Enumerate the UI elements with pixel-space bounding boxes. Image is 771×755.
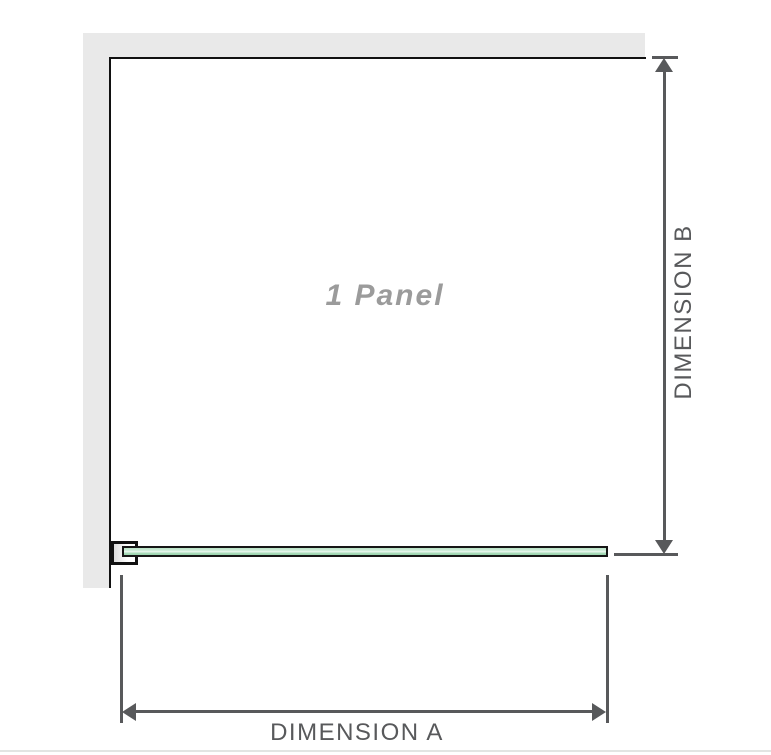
dimension-a-line xyxy=(125,710,603,713)
arrow-left-icon xyxy=(122,703,136,721)
bottom-divider xyxy=(0,750,771,752)
dimension-b-line xyxy=(663,62,666,546)
dimension-a-left-extension xyxy=(120,575,123,723)
dimension-b-label: DIMENSION B xyxy=(670,224,698,399)
arrow-up-icon xyxy=(655,58,673,72)
dimension-a-label: DIMENSION A xyxy=(270,719,444,747)
wall-strip-top xyxy=(83,33,645,57)
panel-dimension-diagram: 1 Panel DIMENSION B DIMENSION A xyxy=(0,0,771,755)
panel-outline xyxy=(109,57,646,588)
arrow-right-icon xyxy=(592,703,606,721)
wall-strip-left xyxy=(83,33,109,588)
dimension-a-right-extension xyxy=(606,575,609,723)
glass-panel-plan xyxy=(122,546,608,557)
panel-count-label: 1 Panel xyxy=(325,279,444,313)
arrow-down-icon xyxy=(655,540,673,554)
